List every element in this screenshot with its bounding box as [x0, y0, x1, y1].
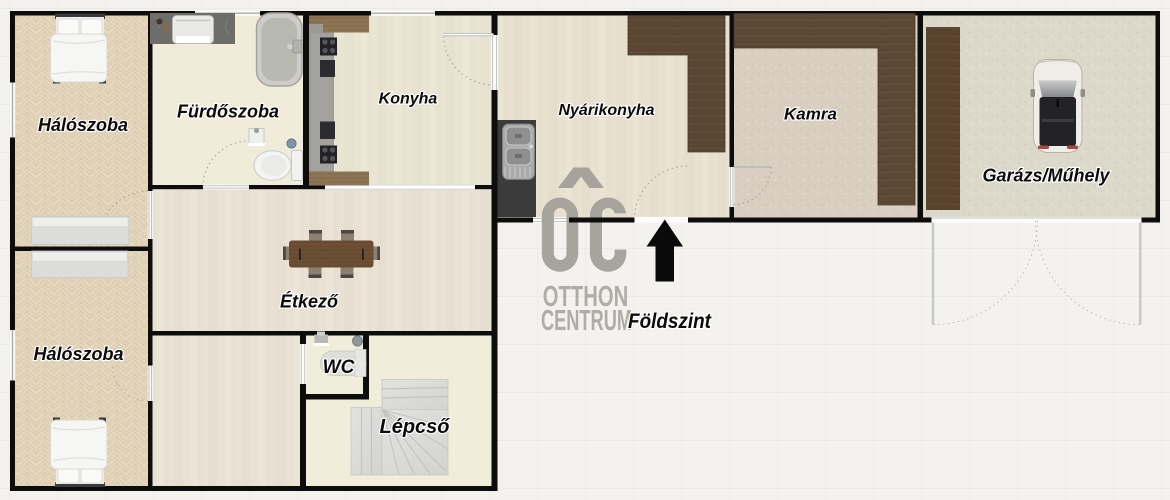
svg-text:Lépcső: Lépcső [379, 416, 450, 438]
svg-text:Földszint: Földszint [628, 310, 712, 333]
svg-text:Kamra: Kamra [784, 105, 837, 124]
svg-text:WC: WC [323, 357, 355, 378]
svg-text:Nyárikonyha: Nyárikonyha [558, 102, 654, 119]
svg-text:Étkező: Étkező [280, 291, 339, 312]
svg-text:Garázs/Műhely: Garázs/Műhely [982, 166, 1110, 186]
svg-text:Konyha: Konyha [379, 91, 438, 108]
svg-text:Hálószoba: Hálószoba [38, 115, 128, 135]
svg-text:CENTRUM: CENTRUM [541, 305, 632, 337]
svg-text:Hálószoba: Hálószoba [33, 344, 123, 364]
svg-text:Fürdőszoba: Fürdőszoba [177, 102, 279, 122]
